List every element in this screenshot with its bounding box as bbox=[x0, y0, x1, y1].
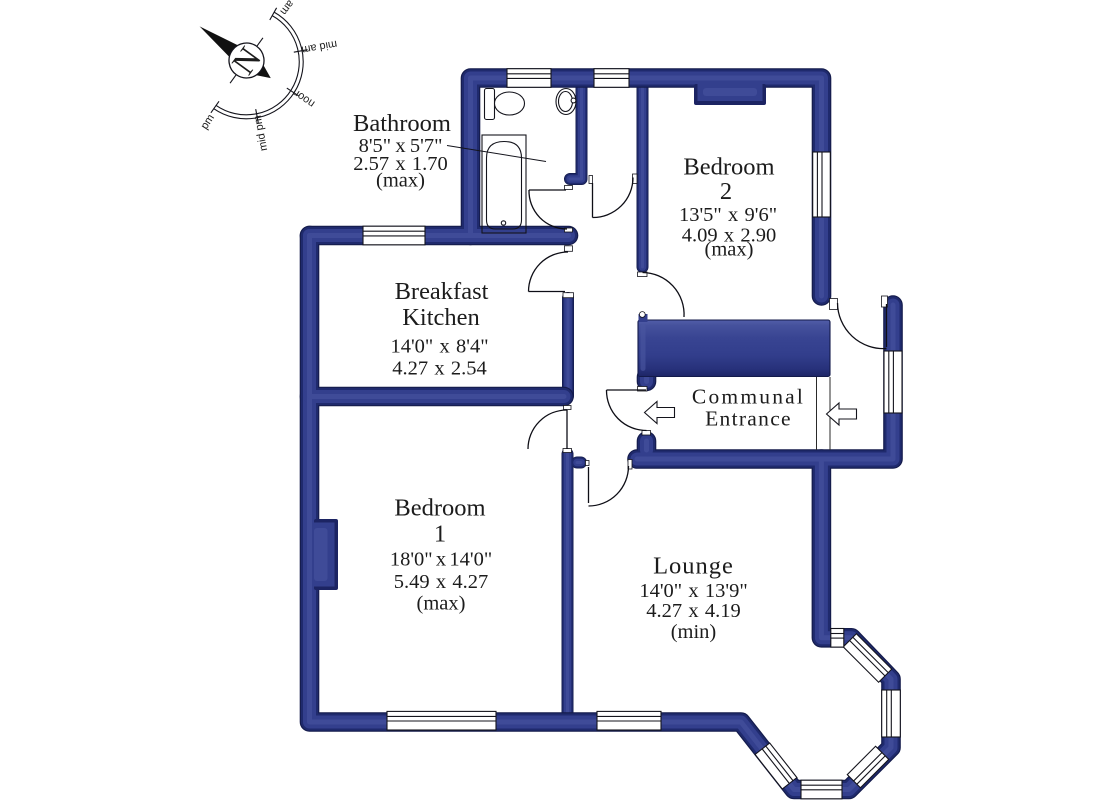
svg-text:18'0" x 14'0": 18'0" x 14'0" bbox=[390, 549, 492, 571]
svg-text:Communal: Communal bbox=[692, 385, 805, 409]
svg-text:Breakfast: Breakfast bbox=[395, 278, 489, 305]
svg-text:5.49 x 4.27: 5.49 x 4.27 bbox=[394, 571, 489, 593]
svg-text:Bathroom: Bathroom bbox=[353, 110, 451, 137]
svg-text:Kitchen: Kitchen bbox=[402, 304, 480, 331]
svg-text:14'0" x 13'9": 14'0" x 13'9" bbox=[639, 580, 747, 602]
svg-text:am: am bbox=[277, 0, 296, 17]
svg-text:13'5" x 9'6": 13'5" x 9'6" bbox=[679, 204, 777, 226]
svg-text:mid am: mid am bbox=[300, 38, 338, 56]
svg-text:4.27 x 4.19: 4.27 x 4.19 bbox=[646, 600, 741, 622]
svg-text:4.27 x 2.54: 4.27 x 2.54 bbox=[392, 358, 487, 380]
svg-text:mid pm: mid pm bbox=[252, 114, 270, 152]
svg-text:14'0" x 8'4": 14'0" x 8'4" bbox=[390, 336, 488, 358]
svg-text:2: 2 bbox=[720, 178, 732, 205]
svg-text:pm: pm bbox=[199, 112, 217, 131]
svg-text:Entrance: Entrance bbox=[705, 407, 792, 431]
svg-text:(max): (max) bbox=[376, 170, 425, 192]
svg-text:(min): (min) bbox=[671, 621, 717, 643]
svg-text:noon: noon bbox=[290, 86, 317, 110]
svg-text:Bedroom: Bedroom bbox=[683, 154, 774, 181]
svg-text:1: 1 bbox=[434, 521, 446, 548]
svg-text:(max): (max) bbox=[705, 239, 754, 261]
svg-text:Lounge: Lounge bbox=[653, 553, 734, 580]
svg-text:Bedroom: Bedroom bbox=[394, 495, 485, 522]
svg-text:(max): (max) bbox=[417, 593, 466, 615]
